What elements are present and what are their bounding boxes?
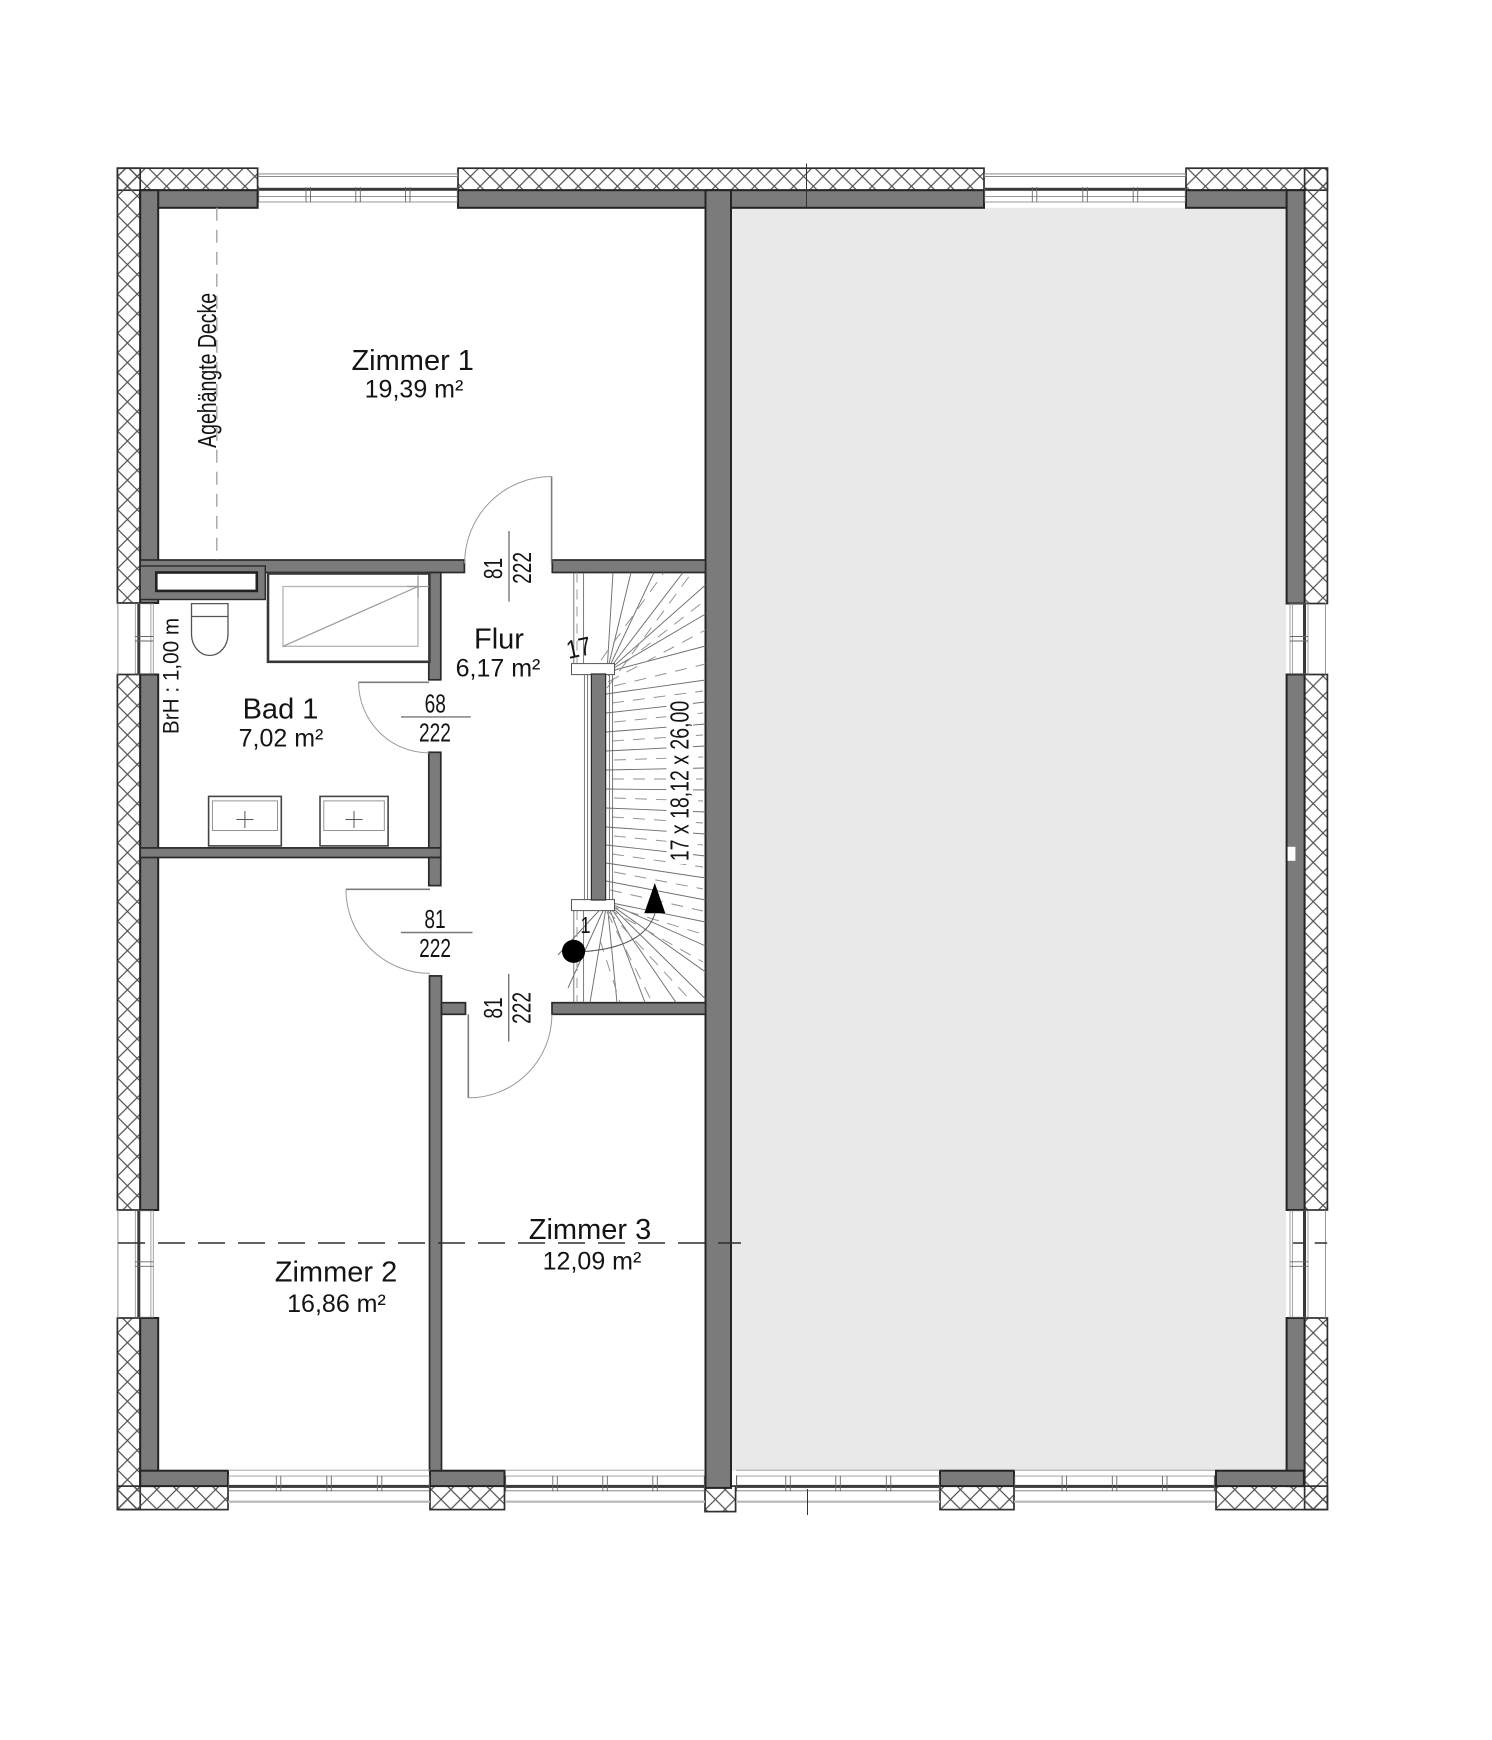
svg-text:68: 68 <box>425 690 446 718</box>
svg-text:Agehängte Decke: Agehängte Decke <box>192 293 221 448</box>
svg-text:81: 81 <box>479 997 507 1018</box>
svg-text:222: 222 <box>508 552 536 584</box>
svg-text:81: 81 <box>424 905 445 933</box>
svg-text:Flur: Flur <box>474 624 524 656</box>
svg-text:19,39 m²: 19,39 m² <box>365 376 464 404</box>
svg-text:6,17 m²: 6,17 m² <box>456 655 541 683</box>
svg-text:222: 222 <box>419 934 451 962</box>
svg-text:12,09 m²: 12,09 m² <box>543 1247 642 1275</box>
svg-text:Zimmer 3: Zimmer 3 <box>529 1214 651 1246</box>
svg-text:17: 17 <box>564 632 594 666</box>
svg-text:222: 222 <box>508 992 536 1024</box>
svg-text:Zimmer 1: Zimmer 1 <box>351 345 473 377</box>
svg-text:1: 1 <box>580 913 590 938</box>
svg-text:17 x 18,12 x 26,00: 17 x 18,12 x 26,00 <box>665 701 694 861</box>
svg-text:7,02 m²: 7,02 m² <box>239 725 324 753</box>
svg-text:BrH : 1,00 m: BrH : 1,00 m <box>158 618 184 734</box>
svg-text:81: 81 <box>479 558 507 579</box>
svg-text:Zimmer 2: Zimmer 2 <box>275 1257 397 1289</box>
svg-text:Bad 1: Bad 1 <box>243 693 319 725</box>
svg-text:16,86 m²: 16,86 m² <box>287 1290 386 1318</box>
svg-text:222: 222 <box>419 719 451 747</box>
